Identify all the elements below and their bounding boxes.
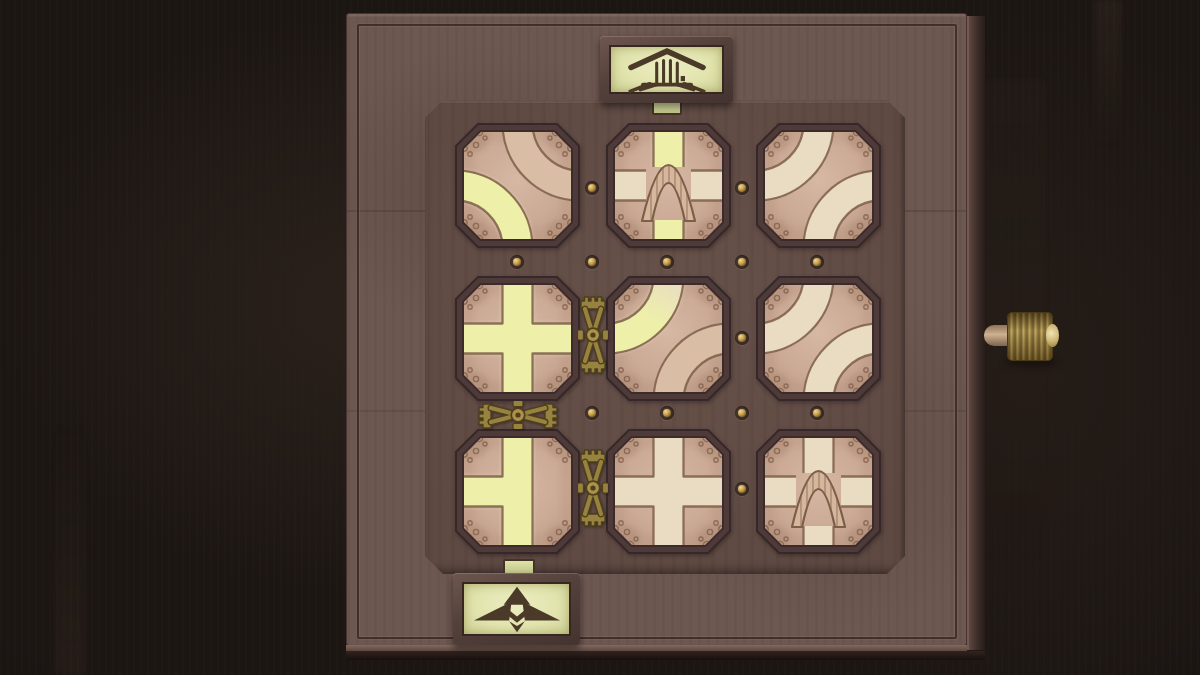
rivet-dot [663, 409, 671, 417]
rivet-dot [738, 409, 746, 417]
brass-rivet [810, 406, 824, 420]
tile-r0c0[interactable] [455, 123, 580, 248]
rivet-dot [738, 485, 746, 493]
rivet-dot [588, 409, 596, 417]
brass-rivet [585, 181, 599, 195]
rivet-dot [813, 409, 821, 417]
stilt-hut-icon [624, 46, 710, 94]
entrance-marker-face [609, 45, 724, 94]
tile-r1c0[interactable] [455, 276, 580, 401]
gear-link-r1c0-r2c0 [476, 401, 560, 433]
tile-r1c1[interactable] [606, 276, 731, 401]
winged-up-arrow-icon [470, 585, 564, 634]
brass-rivet [585, 406, 599, 420]
brass-rivet [660, 406, 674, 420]
rivet-dot [588, 258, 596, 266]
knob-end-cap [1046, 324, 1059, 347]
rivet-dot [513, 258, 521, 266]
tile-r1c2[interactable] [756, 276, 881, 401]
brass-rivet [735, 406, 749, 420]
exit-marker-face [462, 582, 571, 636]
tile-r0c2[interactable] [756, 123, 881, 248]
tile-r2c0[interactable] [455, 429, 580, 554]
rivet-dot [738, 184, 746, 192]
tile-r2c1[interactable] [606, 429, 731, 554]
brass-rivet [735, 331, 749, 345]
rivet-dot [663, 258, 671, 266]
rivet-dot [813, 258, 821, 266]
brass-rivet [810, 255, 824, 269]
tile-r2c2[interactable] [756, 429, 881, 554]
brass-rivet [510, 255, 524, 269]
board-bottom-edge [346, 651, 985, 660]
rivet-dot [738, 334, 746, 342]
board-right-edge [967, 16, 985, 650]
exit-marker [453, 573, 580, 645]
brass-rivet [735, 255, 749, 269]
gear-link-r2c0-r2c1 [578, 448, 608, 532]
rivet-dot [738, 258, 746, 266]
brass-rivet [585, 255, 599, 269]
brass-rivet [735, 181, 749, 195]
rivet-dot [588, 184, 596, 192]
background-wood-streak [1095, 0, 1121, 150]
brass-rivet [660, 255, 674, 269]
entrance-marker [600, 36, 733, 103]
background-wood-streak [55, 420, 85, 675]
gear-link-r1c0-r1c1 [578, 295, 608, 379]
brass-rivet [735, 482, 749, 496]
tile-r0c1[interactable] [606, 123, 731, 248]
puzzle-scene [0, 0, 1200, 675]
